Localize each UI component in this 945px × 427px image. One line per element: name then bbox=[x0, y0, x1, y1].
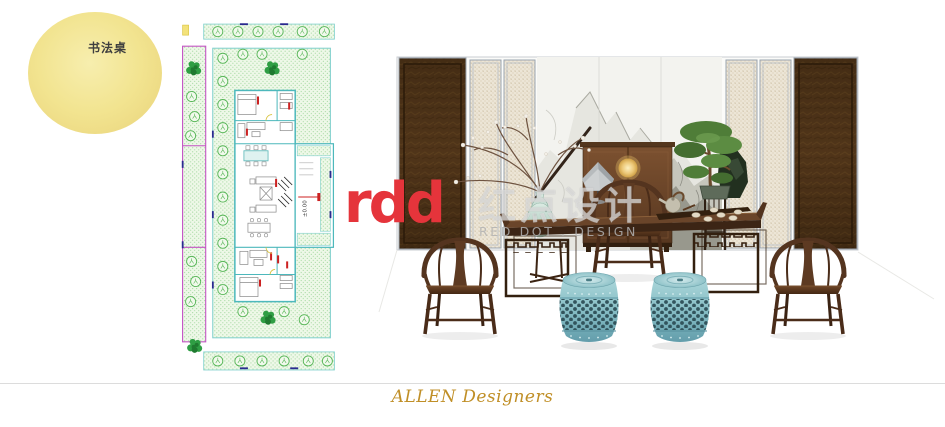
design-board: 书法桌 bbox=[0, 0, 945, 427]
footer-divider bbox=[0, 383, 945, 384]
garden-stool-left bbox=[558, 273, 620, 351]
right-door-panel bbox=[794, 58, 857, 249]
watermark-logo: rdd bbox=[344, 176, 443, 232]
callout-label: 书法桌 bbox=[88, 39, 127, 56]
ming-chair-right bbox=[769, 240, 846, 340]
plan-building bbox=[235, 90, 295, 301]
watermark-en-text: RED DOT . DESIGN bbox=[479, 224, 638, 239]
render-collage bbox=[378, 50, 945, 372]
plan-entry-court: ±0.00 bbox=[295, 144, 333, 248]
moon-lamp-icon bbox=[619, 159, 638, 178]
ming-chair-left bbox=[421, 240, 498, 340]
garden-stool-right bbox=[649, 273, 711, 351]
bonsai-pot bbox=[700, 186, 730, 199]
floor-plan: ±0.00 bbox=[179, 10, 339, 372]
brand-signature: ALLEN Designers bbox=[0, 387, 945, 407]
callout-bubble: 书法桌 bbox=[28, 12, 162, 134]
elevation-label: ±0.00 bbox=[302, 200, 308, 217]
watermark-cn-text: 红点设计 bbox=[478, 187, 646, 225]
